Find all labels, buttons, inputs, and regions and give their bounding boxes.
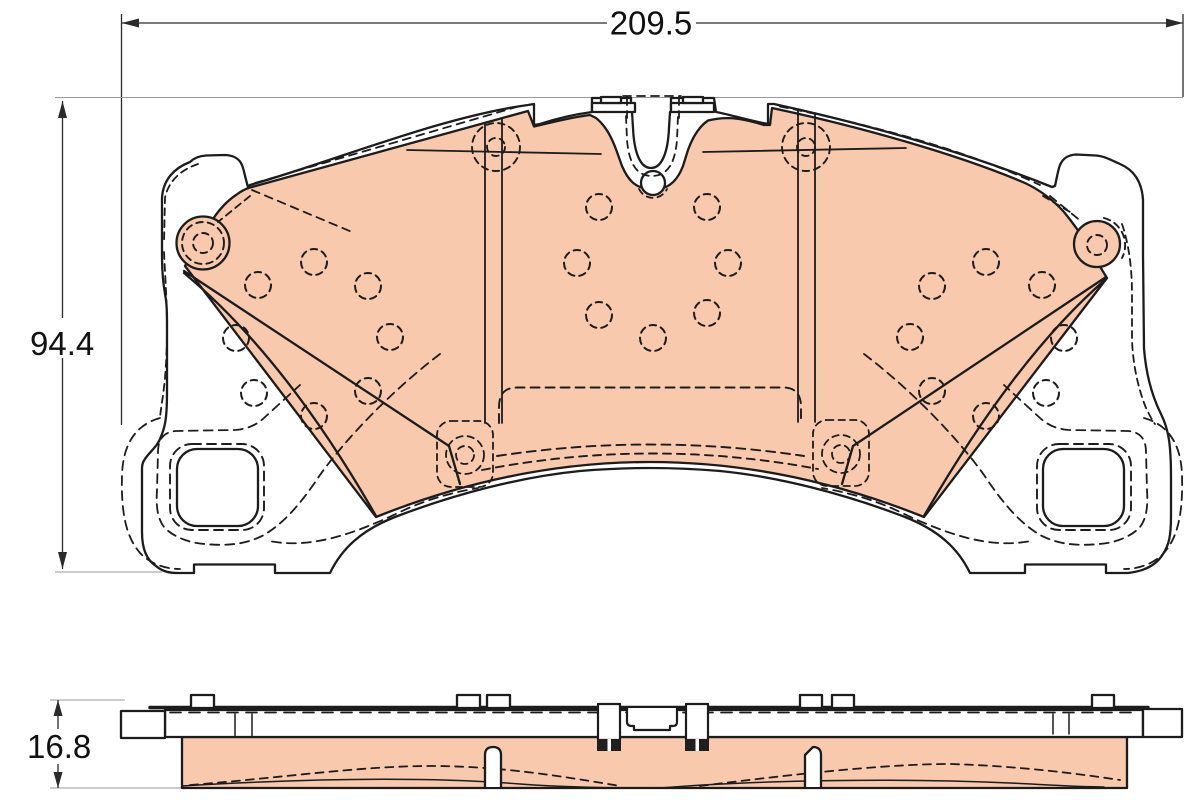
svg-text:16.8: 16.8 (27, 728, 91, 765)
svg-text:94.4: 94.4 (30, 325, 94, 362)
svg-text:209.5: 209.5 (610, 5, 693, 42)
